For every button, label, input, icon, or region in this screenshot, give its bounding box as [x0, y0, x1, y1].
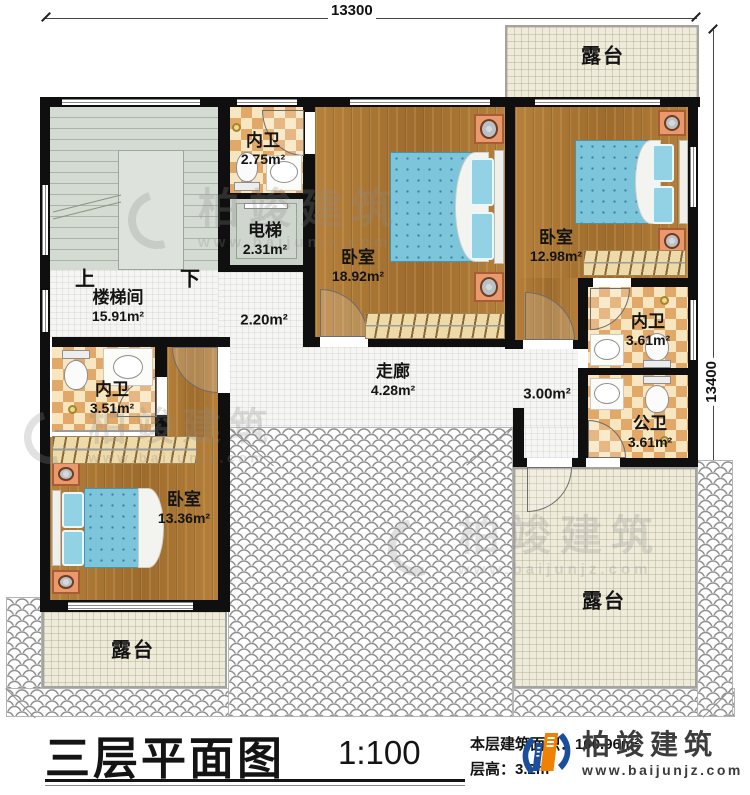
nightstand	[474, 114, 504, 144]
roof-shingles	[228, 427, 513, 717]
wall	[218, 193, 315, 199]
lamp-icon	[58, 575, 74, 589]
door-opening	[527, 458, 572, 467]
wall	[40, 337, 50, 612]
corridor-floor	[218, 272, 230, 337]
lamp-icon	[480, 119, 498, 139]
sink-icon	[594, 383, 620, 404]
toilet-tank-icon	[643, 376, 671, 384]
wall	[218, 265, 315, 272]
wardrobe	[52, 436, 197, 464]
hall-small-area: 2.20m²	[240, 312, 288, 329]
window	[535, 99, 660, 105]
window	[42, 290, 48, 332]
logo-name: 柏竣建筑	[582, 731, 743, 759]
bed	[84, 488, 144, 568]
toilet-tank-icon	[643, 360, 671, 368]
toilet-tank-icon	[62, 350, 90, 359]
sliding-door	[68, 602, 193, 610]
stairs-up-label: 上	[75, 263, 95, 292]
room-label-terrace-top: 露台	[581, 46, 625, 69]
logo-texts: 柏竣建筑 www.baijunjz.com	[582, 731, 743, 778]
wardrobe	[365, 313, 505, 339]
room-label-corridor: 走廊 4.28m²	[371, 362, 415, 398]
lamp-icon	[480, 277, 498, 297]
stairwell-stairs	[50, 107, 218, 270]
room-label-terrace-bottom-left: 露台	[111, 640, 155, 663]
lamp-icon	[664, 115, 680, 131]
nightstand	[658, 110, 686, 136]
logo-icon	[518, 726, 574, 782]
window	[690, 147, 696, 207]
window	[237, 99, 297, 105]
logo-url: www.baijunjz.com	[582, 762, 743, 778]
window	[42, 185, 48, 255]
title-scale: 1:100	[338, 734, 421, 772]
window	[690, 300, 696, 360]
bed-headboard	[52, 490, 61, 566]
dimension-tick	[41, 12, 51, 22]
elevator-door	[244, 203, 288, 209]
hall-right-area: 3.00m²	[523, 386, 571, 403]
nightstand	[52, 462, 80, 486]
towel-ring-icon	[660, 296, 669, 305]
hall-small-floor	[230, 272, 303, 347]
lamp-icon	[664, 233, 680, 249]
title-underline	[45, 779, 465, 782]
lamp-icon	[58, 467, 74, 481]
room-label-bath-right: 内卫 3.61m²	[626, 312, 670, 348]
pillow	[652, 144, 674, 182]
dimension-top-label: 13300	[328, 2, 376, 19]
toilet-icon	[64, 360, 88, 390]
door-opening	[305, 112, 315, 154]
room-label-bedroom-right: 卧室 12.98m²	[530, 228, 582, 264]
door-opening	[586, 458, 620, 467]
pillow	[470, 158, 494, 206]
room-label-stairwell: 楼梯间 15.91m²	[92, 288, 144, 324]
sink-icon	[113, 355, 143, 379]
wall	[583, 368, 688, 375]
door-opening	[320, 337, 368, 347]
pillow	[470, 212, 494, 260]
dimension-tick	[691, 12, 701, 22]
wall	[505, 97, 515, 347]
floor-plan-canvas: 13300 13400	[0, 0, 750, 795]
nightstand	[474, 272, 504, 302]
page-title: 三层平面图	[45, 722, 285, 787]
door-opening	[218, 347, 230, 393]
roof-shingles	[6, 688, 260, 717]
roof-shingles	[697, 460, 733, 717]
wall	[218, 97, 230, 272]
towel-ring-icon	[68, 405, 77, 414]
nightstand	[52, 570, 80, 594]
pillow	[652, 186, 674, 224]
wardrobe	[583, 250, 686, 276]
dimension-right-label: 13400	[703, 358, 720, 406]
door-opening	[593, 278, 631, 287]
room-label-bedroom-center: 卧室 18.92m²	[332, 248, 384, 284]
window	[62, 99, 200, 105]
wall	[578, 368, 588, 467]
pillow	[62, 492, 84, 528]
room-label-bath-public: 公卫 3.61m²	[628, 414, 672, 450]
wall	[52, 337, 230, 347]
towel-ring-icon	[232, 123, 241, 132]
door-opening	[157, 377, 167, 415]
wall	[578, 278, 588, 349]
room-label-bedroom-bottom-left: 卧室 13.36m²	[158, 490, 210, 526]
room-label-bath-left: 内卫 3.51m²	[90, 380, 134, 416]
room-label-terrace-bottom-right: 露台	[582, 591, 626, 614]
toilet-icon	[645, 385, 669, 413]
pillow	[62, 530, 84, 566]
room-label-elevator: 电梯 2.31m²	[243, 221, 287, 257]
bed-headboard	[494, 150, 504, 264]
sink-icon	[594, 339, 620, 360]
bed-headboard	[679, 140, 688, 224]
window	[350, 99, 490, 105]
brand-logo: 柏竣建筑 www.baijunjz.com	[518, 726, 743, 782]
stair-landing	[118, 150, 184, 270]
bath-left-edge	[55, 430, 155, 432]
toilet-tank-icon	[234, 182, 260, 191]
room-label-bath-top: 内卫 2.75m²	[241, 131, 285, 167]
stairs-down-label: 下	[180, 263, 200, 292]
door-opening	[523, 340, 573, 349]
title-underline-thin	[45, 785, 465, 786]
